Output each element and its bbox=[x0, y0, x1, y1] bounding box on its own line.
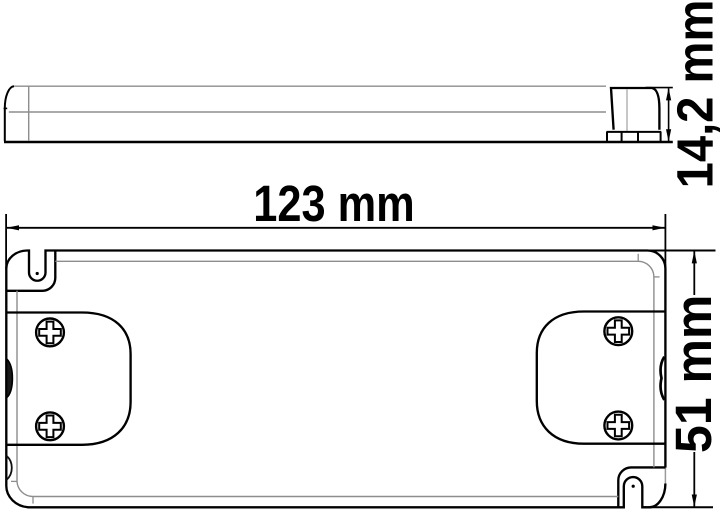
svg-text:14,2 mm: 14,2 mm bbox=[668, 0, 720, 188]
svg-text:51 mm: 51 mm bbox=[665, 295, 720, 453]
svg-text:123 mm: 123 mm bbox=[253, 176, 414, 233]
